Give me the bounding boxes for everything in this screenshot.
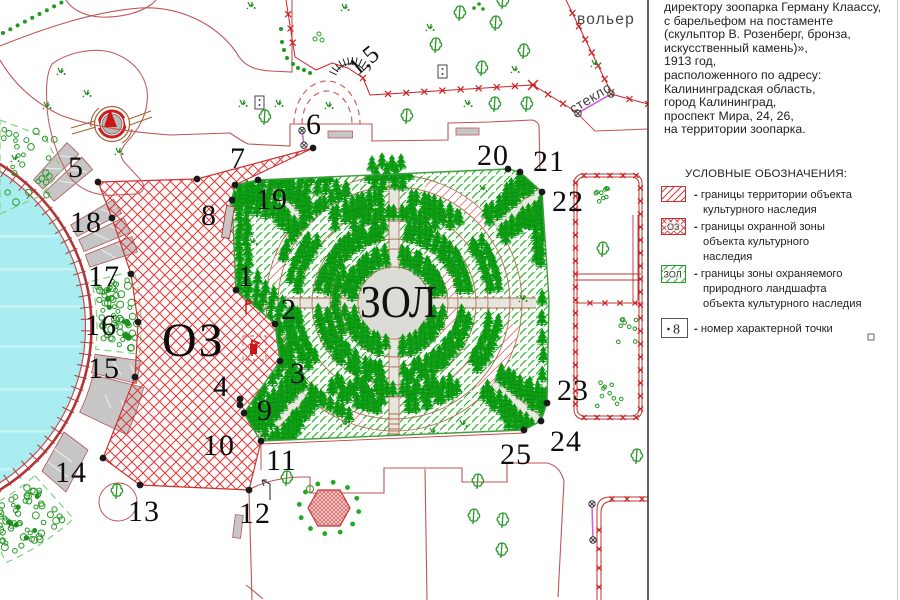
svg-text:ОЗ: ОЗ bbox=[667, 222, 679, 232]
svg-text:11: 11 bbox=[266, 444, 297, 477]
svg-text:ЗОЛ: ЗОЛ bbox=[664, 270, 682, 280]
svg-text:19: 19 bbox=[256, 183, 288, 216]
svg-text:8: 8 bbox=[673, 323, 680, 338]
svg-text:20: 20 bbox=[477, 139, 509, 172]
svg-text:8: 8 bbox=[201, 199, 217, 232]
svg-text:22: 22 bbox=[552, 185, 584, 218]
svg-text:15: 15 bbox=[88, 352, 120, 385]
svg-text:10: 10 bbox=[203, 429, 235, 462]
svg-text:3: 3 bbox=[290, 357, 306, 390]
svg-text:7: 7 bbox=[230, 142, 246, 175]
svg-text:вольер: вольер bbox=[577, 11, 635, 28]
svg-text:14: 14 bbox=[55, 456, 87, 489]
svg-text:13: 13 bbox=[128, 495, 160, 528]
svg-text:25: 25 bbox=[500, 438, 532, 471]
svg-text:ОЗ: ОЗ bbox=[162, 314, 225, 367]
svg-text:2: 2 bbox=[281, 293, 297, 326]
svg-text:4: 4 bbox=[213, 370, 229, 403]
svg-text:21: 21 bbox=[533, 145, 565, 178]
svg-text:1: 1 bbox=[238, 260, 254, 293]
svg-text:5: 5 bbox=[68, 151, 84, 184]
svg-text:12: 12 bbox=[239, 497, 271, 530]
svg-text:9: 9 bbox=[257, 394, 273, 427]
svg-text:16: 16 bbox=[85, 309, 117, 342]
svg-text:23: 23 bbox=[557, 374, 589, 407]
svg-text:24: 24 bbox=[550, 425, 582, 458]
svg-text:ЗОЛ: ЗОЛ bbox=[360, 277, 437, 327]
svg-text:18: 18 bbox=[70, 206, 102, 239]
svg-text:6: 6 bbox=[306, 108, 322, 141]
svg-text:17: 17 bbox=[88, 260, 120, 293]
